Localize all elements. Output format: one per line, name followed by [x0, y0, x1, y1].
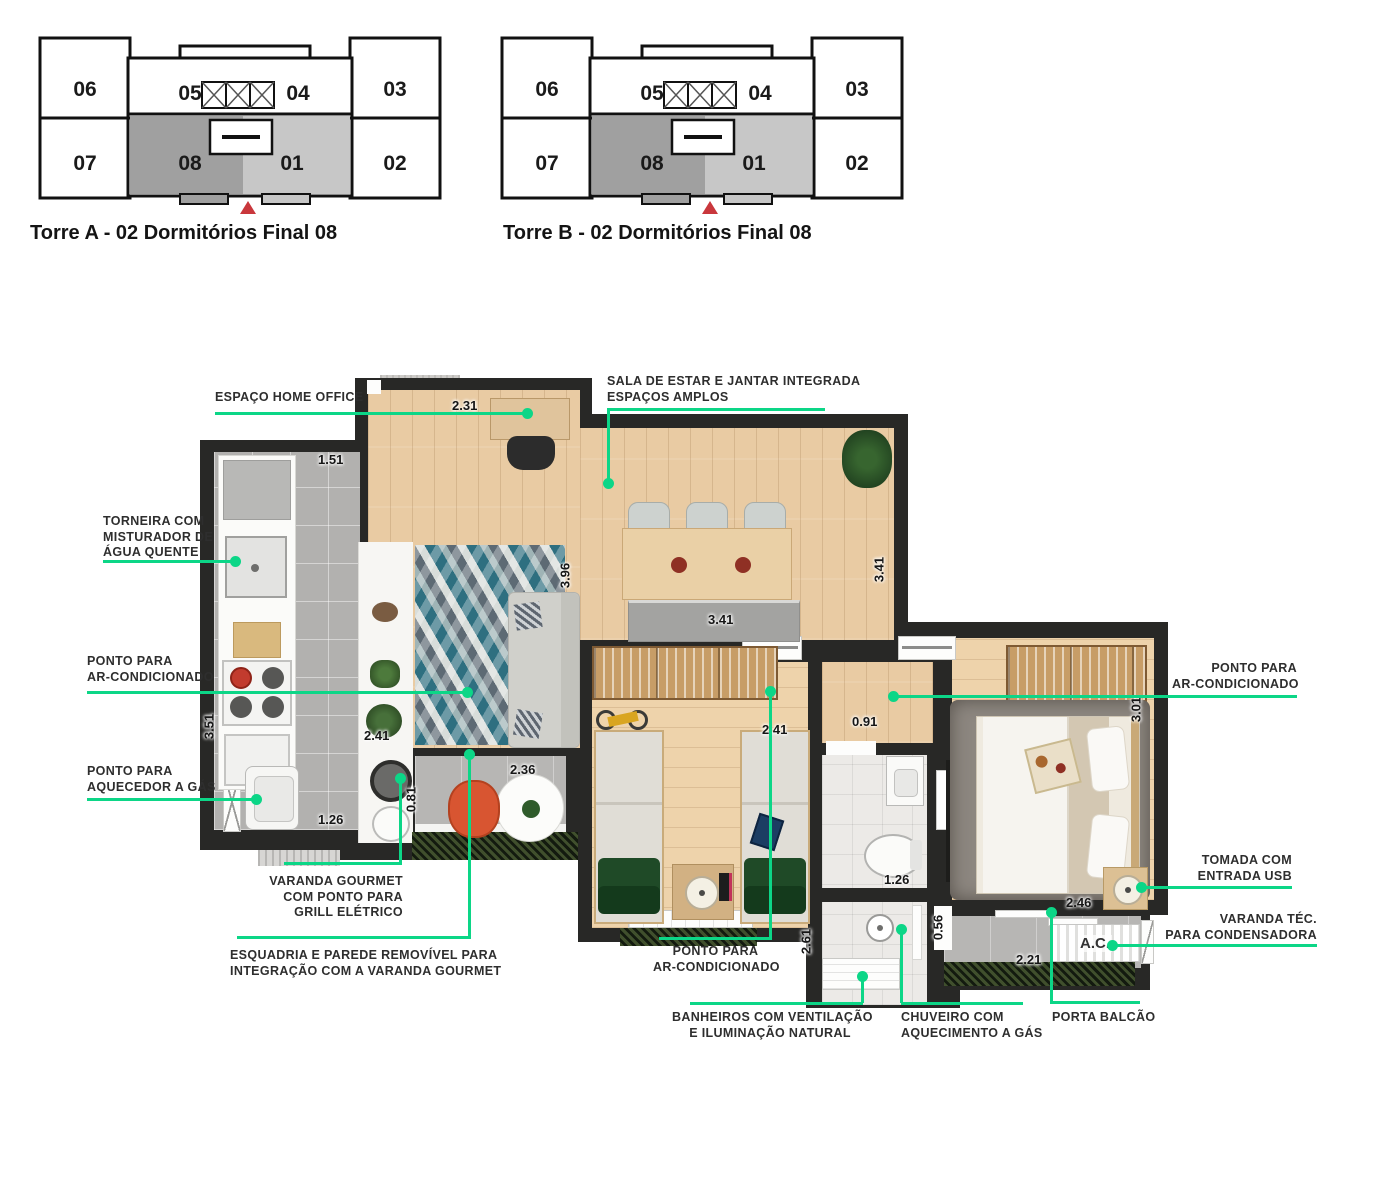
varanda-table — [496, 774, 564, 842]
unit-label: 03 — [845, 78, 868, 101]
shower-head — [866, 914, 894, 942]
unit-label: 05 — [178, 82, 202, 105]
unit-08-jag — [642, 194, 690, 204]
floorplan-page: { "colors": { "accent_green": "#0cd687",… — [0, 0, 1377, 1200]
dim-0-81: 0.81 — [404, 780, 419, 820]
home-office-desk — [490, 398, 570, 440]
leader-dot — [462, 687, 473, 698]
annotation-line-text: AR-CONDICIONADO — [653, 960, 778, 976]
porta-balcao-bar1 — [995, 910, 1050, 918]
desk-chair — [507, 436, 555, 470]
annotation-home-office: ESPAÇO HOME OFFICE — [215, 390, 363, 406]
dim-1-26a: 1.26 — [318, 812, 343, 827]
annotation-line-text: PARA CONDENSADORA — [1150, 928, 1317, 944]
leader-dot — [1136, 882, 1147, 893]
leader-line — [103, 560, 235, 563]
dim-2-41a: 2.41 — [364, 728, 389, 743]
annotation-line-text: AR-CONDICIONADO — [1172, 677, 1297, 693]
hedge-varanda-gourmet — [412, 832, 578, 860]
annotation-esquadria: ESQUADRIA E PAREDE REMOVÍVEL PARA INTEGR… — [230, 948, 475, 979]
annotation-line-text: VARANDA GOURMET — [250, 874, 403, 890]
cutting-board — [233, 622, 281, 658]
annotation-ar-left: PONTO PARA AR-CONDICIONADO — [87, 654, 214, 685]
unit-01-jag — [262, 194, 310, 204]
dim-0-56: 0.56 — [931, 908, 946, 948]
dim-2-46: 2.46 — [1066, 895, 1091, 910]
bath-divider-wall — [822, 888, 927, 902]
keyplan-title-torre-a: Torre A - 02 Dormitórios Final 08 — [30, 222, 337, 245]
leader-line — [1050, 1001, 1140, 1004]
books — [719, 873, 732, 901]
annotation-banheiros: BANHEIROS COM VENTILAÇÃO E ILUMINAÇÃO NA… — [672, 1010, 868, 1041]
leader-dot — [464, 749, 475, 760]
annotation-aquecedor: PONTO PARA AQUECEDOR A GÁS — [87, 764, 216, 795]
bed-blanket-fold — [742, 802, 808, 805]
nightstand-bedroom2 — [672, 864, 734, 920]
annotation-line-text: BANHEIROS COM VENTILAÇÃO — [672, 1010, 868, 1026]
tablet — [750, 813, 785, 851]
burner — [262, 696, 284, 718]
shower-dot — [877, 925, 883, 931]
annotation-line-text: ESPAÇOS AMPLOS — [607, 390, 860, 406]
unit-label: 06 — [73, 78, 96, 101]
bath-basin — [894, 769, 918, 797]
unit-label: 01 — [280, 152, 304, 175]
leader-dot — [251, 794, 262, 805]
leader-line — [399, 780, 402, 865]
burner-red — [230, 667, 252, 689]
annotation-line-text: PORTA BALCÃO — [1052, 1010, 1156, 1024]
dim-3-41b: 3.41 — [872, 550, 887, 590]
unit-01-jag — [724, 194, 772, 204]
annotation-torneira: TORNEIRA COM MISTURADOR DE ÁGUA QUENTE — [103, 514, 213, 561]
kitchen-sink — [225, 536, 287, 598]
unit-label: 02 — [383, 152, 406, 175]
leader-line — [690, 1002, 863, 1005]
dim-1-26b: 1.26 — [884, 872, 909, 887]
annotation-tomada: TOMADA COM ENTRADA USB — [1150, 853, 1292, 884]
leader-dot — [230, 556, 241, 567]
lamp — [685, 876, 719, 910]
leader-dot — [603, 478, 614, 489]
annotation-line-text: TOMADA COM — [1150, 853, 1292, 869]
annotation-varanda-tec: VARANDA TÉC. PARA CONDENSADORA — [1150, 912, 1317, 943]
leader-line — [901, 1002, 1023, 1005]
table-flowers — [735, 557, 751, 573]
annotation-line-text: AQUECIMENTO A GÁS — [901, 1026, 1043, 1042]
leader-dot — [1107, 940, 1118, 951]
unit-label: 04 — [748, 82, 772, 105]
bath-sink-counter — [886, 756, 924, 806]
unit-label: 04 — [286, 82, 310, 105]
sofa-pillow — [513, 601, 542, 630]
leader-line — [87, 691, 467, 694]
leader-line — [900, 930, 903, 1003]
shower-glass — [912, 905, 922, 960]
annotation-line-text: PONTO PARA — [87, 764, 216, 780]
annotation-line-text: AQUECEDOR A GÁS — [87, 780, 216, 796]
annotation-line-text: PONTO PARA — [87, 654, 214, 670]
keyplan-torre-b: 06 05 04 03 07 08 01 02 — [492, 24, 917, 216]
leader-line — [607, 408, 825, 411]
annotation-varanda-gourmet: VARANDA GOURMET COM PONTO PARA GRILL ELÉ… — [250, 874, 403, 921]
annotation-porta-balcao: PORTA BALCÃO — [1052, 1010, 1156, 1026]
dim-3-41a: 3.41 — [708, 612, 733, 627]
wardrobe-bedroom2 — [592, 646, 778, 700]
dim-2-21: 2.21 — [1016, 952, 1041, 967]
floor-hall — [822, 662, 933, 743]
tray-food — [1034, 754, 1049, 769]
keyplan-torre-a: 06 05 04 03 07 08 01 02 — [30, 24, 455, 216]
leader-dot — [888, 691, 899, 702]
bed-pillow-green — [598, 886, 660, 914]
dim-3-51: 3.51 — [202, 707, 217, 747]
dim-2-61: 2.61 — [799, 922, 814, 962]
leader-line — [87, 798, 256, 801]
leader-dot — [522, 408, 533, 419]
annotation-line-text: ÁGUA QUENTE — [103, 545, 213, 561]
annotation-line-text: ESPAÇO HOME OFFICE — [215, 390, 363, 404]
bed-blanket-fold — [596, 802, 662, 805]
kitchen-counter — [218, 455, 296, 790]
ac-condenser-unit: A.C. — [1050, 924, 1140, 962]
dim-2-31: 2.31 — [452, 398, 477, 413]
sofa-back — [561, 593, 579, 747]
dim-3-96: 3.96 — [558, 556, 573, 596]
sofa — [508, 592, 580, 748]
wardrobe-master — [1006, 645, 1147, 702]
leader-dot — [896, 924, 907, 935]
dim-0-91: 0.91 — [852, 714, 877, 729]
annotation-line-text: CHUVEIRO COM — [901, 1010, 1043, 1026]
annotation-line-text: PONTO PARA — [653, 944, 778, 960]
annotation-line-text: AR-CONDICIONADO — [87, 670, 214, 686]
faucet-icon — [251, 564, 259, 572]
leader-line — [284, 862, 402, 865]
annotation-line-text: INTEGRAÇÃO COM A VARANDA GOURMET — [230, 964, 475, 980]
location-marker-icon — [702, 201, 718, 214]
peninsula-plant-1 — [370, 660, 400, 688]
keyplan-title-torre-b: Torre B - 02 Dormitórios Final 08 — [503, 222, 812, 245]
annotation-line-text: MISTURADOR DE — [103, 530, 213, 546]
leader-dot — [857, 971, 868, 982]
leader-line — [893, 695, 1297, 698]
annotation-line-text: COM PONTO PARA — [250, 890, 403, 906]
annotation-line-text: ENTRADA USB — [1150, 869, 1292, 885]
living-plant — [842, 430, 892, 488]
unit-label: 07 — [535, 152, 558, 175]
annotation-sala: SALA DE ESTAR E JANTAR INTEGRADA ESPAÇOS… — [607, 374, 860, 405]
location-marker-icon — [240, 201, 256, 214]
leader-line — [1141, 886, 1292, 889]
unit-label: 08 — [640, 152, 664, 175]
bed-single-left — [594, 730, 664, 924]
unit-label: 06 — [535, 78, 558, 101]
kitchen-appliance — [223, 460, 291, 520]
leader-dot — [1046, 907, 1057, 918]
dim-2-36: 2.36 — [510, 762, 535, 777]
annotation-line-text: ESQUADRIA E PAREDE REMOVÍVEL PARA — [230, 948, 475, 964]
unit-label: 01 — [742, 152, 766, 175]
unit-label: 03 — [383, 78, 406, 101]
leader-line — [1112, 944, 1317, 947]
annotation-chuveiro: CHUVEIRO COM AQUECIMENTO A GÁS — [901, 1010, 1043, 1041]
bed-pillow-green — [744, 886, 806, 914]
leader-line — [659, 937, 772, 940]
dim-2-41b: 2.41 — [762, 722, 787, 737]
entry-door-gap — [367, 380, 381, 394]
leader-dot — [765, 686, 776, 697]
dining-table — [622, 528, 792, 600]
toilet-tank — [910, 840, 922, 870]
unit-label: 02 — [845, 152, 868, 175]
leader-line — [1050, 914, 1053, 1001]
pillow — [1086, 725, 1130, 793]
burner — [262, 667, 284, 689]
annotation-line-text: PONTO PARA — [1172, 661, 1297, 677]
door-bath1 — [826, 741, 876, 755]
leader-line — [468, 755, 471, 938]
leader-dot — [395, 773, 406, 784]
annotation-line-text: SALA DE ESTAR E JANTAR INTEGRADA — [607, 374, 860, 390]
bed-single-right — [740, 730, 810, 924]
tray-food — [1055, 762, 1067, 774]
unit-08-jag — [180, 194, 228, 204]
table-plant — [522, 800, 540, 818]
unit-label: 07 — [73, 152, 96, 175]
leader-line — [237, 936, 471, 939]
unit-label: 08 — [178, 152, 202, 175]
leader-line — [769, 692, 772, 938]
leader-line — [215, 412, 527, 415]
leader-line — [607, 408, 610, 484]
burner — [230, 696, 252, 718]
annotation-line-text: E ILUMINAÇÃO NATURAL — [672, 1026, 868, 1042]
annotation-ar-mid: PONTO PARA AR-CONDICIONADO — [653, 944, 778, 975]
dim-1-51: 1.51 — [318, 452, 343, 467]
table-flowers — [671, 557, 687, 573]
annotation-ar-right: PONTO PARA AR-CONDICIONADO — [1172, 661, 1297, 692]
varanda-chair-orange — [448, 780, 500, 838]
door-master-leaf — [902, 646, 952, 649]
peninsula-bowl — [372, 602, 398, 622]
unit-label: 05 — [640, 82, 664, 105]
annotation-line-text: GRILL ELÉTRICO — [250, 905, 403, 921]
sofa-pillow — [513, 709, 543, 739]
annotation-line-text: TORNEIRA COM — [103, 514, 213, 530]
annotation-line-text: VARANDA TÉC. — [1150, 912, 1317, 928]
